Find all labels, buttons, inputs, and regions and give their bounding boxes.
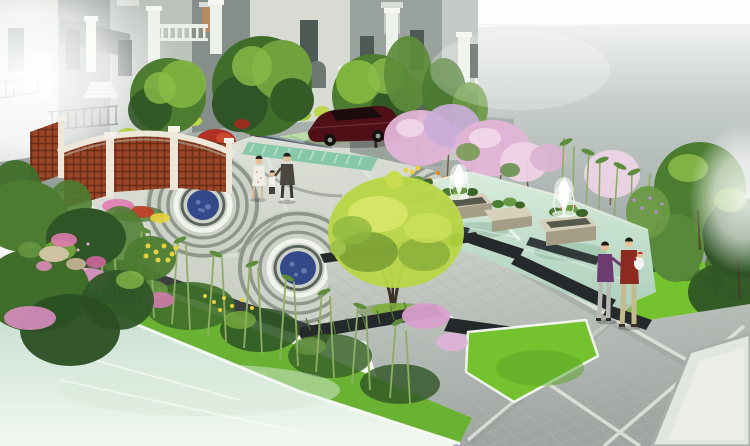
- rendering-canvas: [0, 0, 750, 446]
- landscape-rendering: [0, 0, 750, 446]
- person-child: [269, 170, 275, 194]
- fountain-spray: [449, 164, 469, 200]
